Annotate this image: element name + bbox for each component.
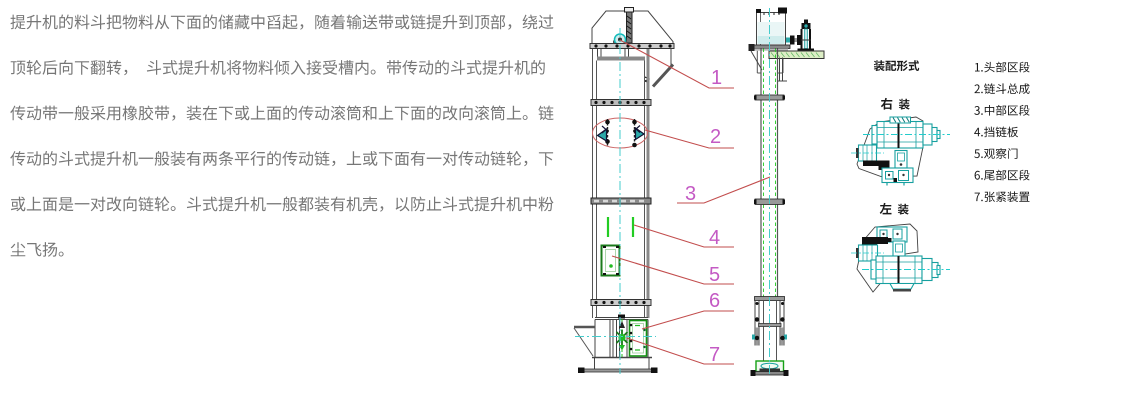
svg-text:4: 4: [709, 227, 720, 249]
svg-text:1: 1: [711, 67, 722, 89]
svg-text:7: 7: [709, 344, 720, 366]
svg-text:6: 6: [709, 290, 720, 312]
svg-text:2: 2: [710, 126, 721, 148]
svg-text:3: 3: [685, 183, 696, 205]
svg-text:5: 5: [709, 264, 720, 286]
